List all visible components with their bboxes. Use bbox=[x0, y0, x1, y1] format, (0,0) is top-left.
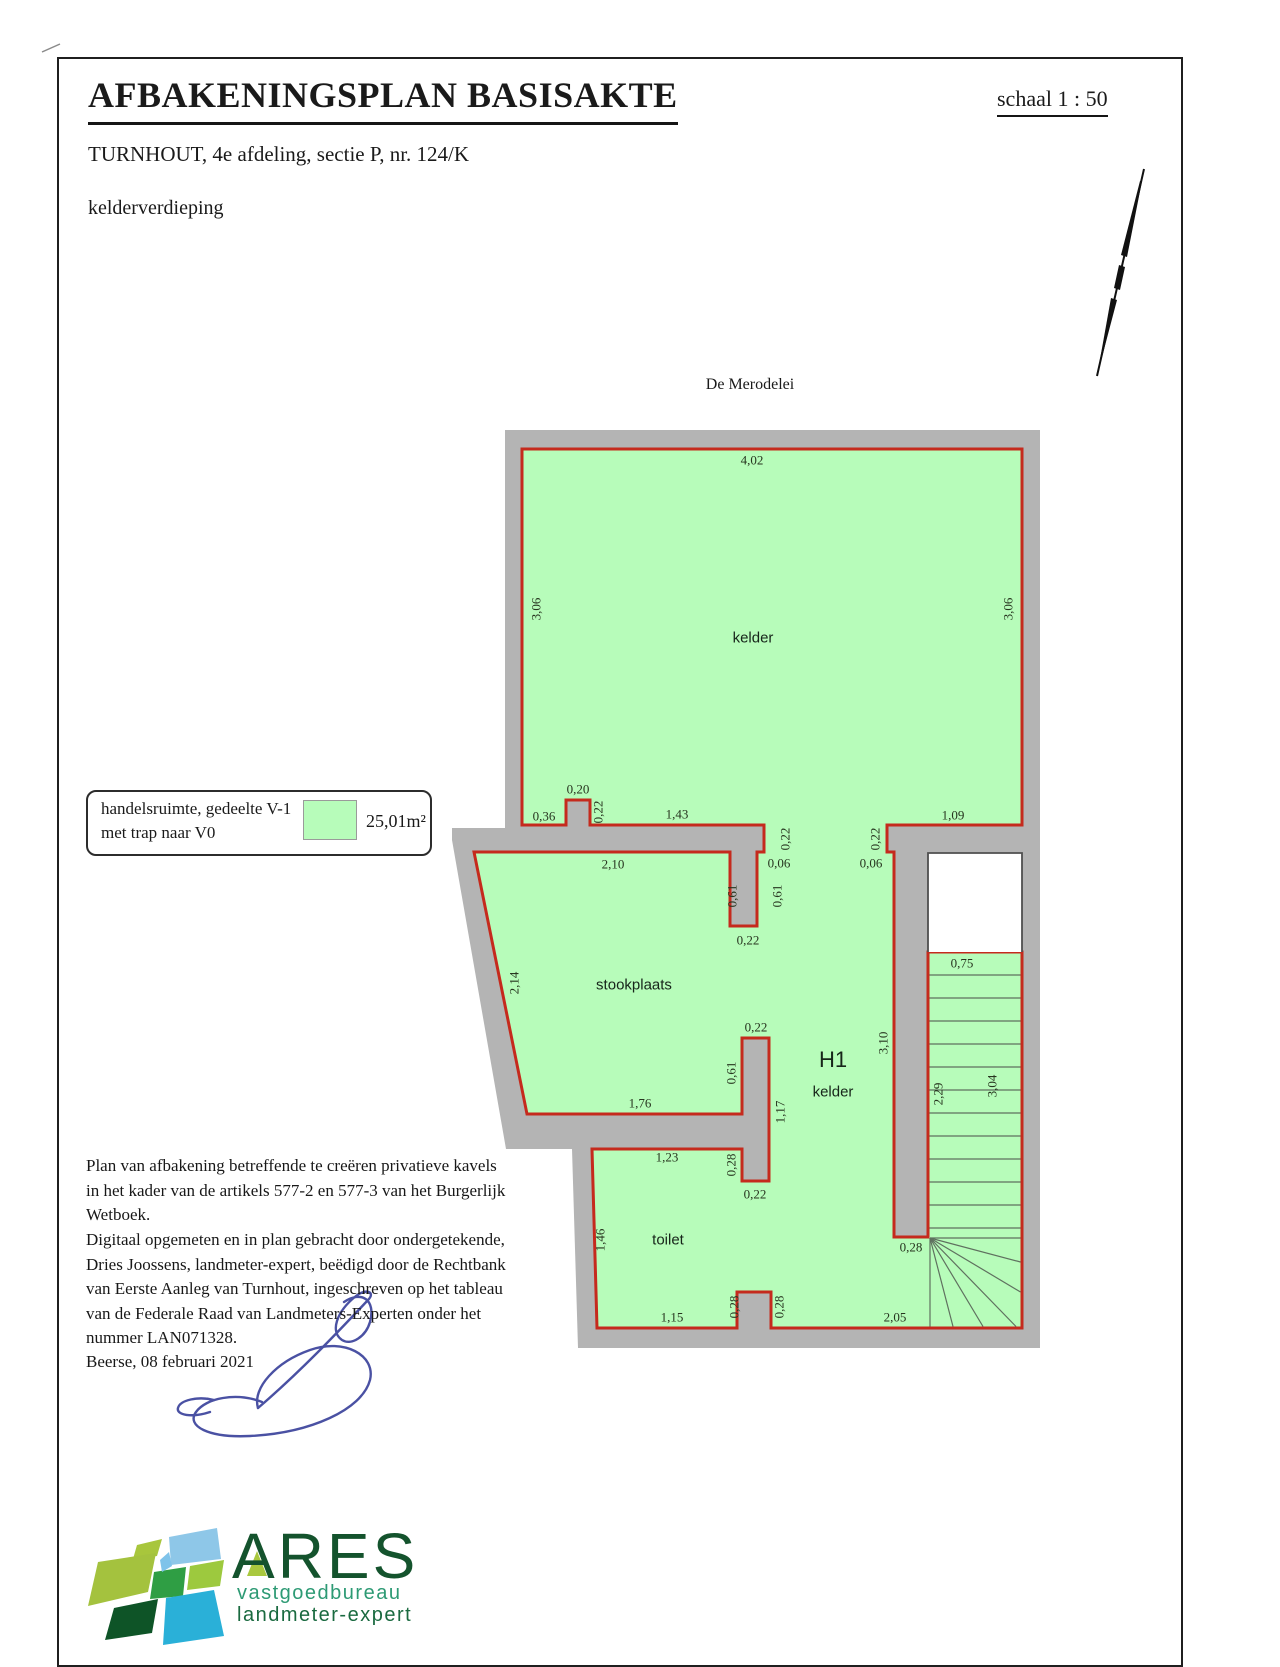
scanned-document-page: { "colors": { "parcel_green": "#b7fcba",… bbox=[0, 0, 1280, 1647]
dimension-label: 1,46 bbox=[594, 1229, 607, 1252]
dimension-label: 0,22 bbox=[737, 934, 760, 947]
dimension-label: 0,36 bbox=[533, 810, 556, 823]
dimension-label: 3,06 bbox=[1002, 598, 1015, 621]
dimension-label: 1,76 bbox=[629, 1097, 652, 1110]
room-label: kelder bbox=[733, 631, 774, 646]
dimension-label: 1,17 bbox=[774, 1101, 787, 1124]
dimension-label: 0,22 bbox=[869, 828, 882, 851]
dimension-label: 1,15 bbox=[661, 1311, 684, 1324]
dimension-label: 2,05 bbox=[884, 1311, 907, 1324]
room-label: H1 bbox=[819, 1049, 847, 1071]
dimension-label: 0,20 bbox=[567, 783, 590, 796]
dimension-label: 3,04 bbox=[986, 1075, 999, 1098]
dimension-label: 0,22 bbox=[592, 801, 605, 824]
note-paragraph-2: Digitaal opgemeten en in plan gebracht d… bbox=[86, 1228, 546, 1351]
dimension-label: 3,10 bbox=[877, 1032, 890, 1055]
street-name: De Merodelei bbox=[706, 376, 794, 394]
dimension-label: 0,06 bbox=[860, 857, 883, 870]
legend-label: handelsruimte, gedeelte V-1 met trap naa… bbox=[101, 797, 291, 845]
dimension-label: 0,28 bbox=[773, 1296, 786, 1319]
logo-subtitle-1: vastgoedbureau bbox=[237, 1583, 401, 1603]
dimension-label: 2,29 bbox=[932, 1083, 945, 1106]
dimension-label: 1,23 bbox=[656, 1151, 679, 1164]
dimension-label: 3,06 bbox=[530, 598, 543, 621]
dimension-label: 0,28 bbox=[900, 1241, 923, 1254]
note-paragraph-1: Plan van afbakening betreffende te creër… bbox=[86, 1154, 546, 1228]
dimension-label: 0,22 bbox=[744, 1188, 767, 1201]
dimension-label: 2,10 bbox=[602, 858, 625, 871]
dimension-label: 1,09 bbox=[942, 809, 965, 822]
north-needle-icon bbox=[1097, 169, 1144, 376]
dimension-label: 0,22 bbox=[745, 1021, 768, 1034]
dimension-label: 0,61 bbox=[726, 885, 739, 908]
place-and-date: Beerse, 08 februari 2021 bbox=[86, 1350, 546, 1375]
stair-void bbox=[928, 853, 1022, 952]
dimension-label: 0,28 bbox=[728, 1296, 741, 1319]
scan-artifact bbox=[42, 44, 60, 52]
dimension-label: 0,75 bbox=[951, 957, 974, 970]
dimension-label: 0,06 bbox=[768, 857, 791, 870]
dimension-label: 0,61 bbox=[725, 1062, 738, 1085]
logo-subtitle-2: landmeter-expert bbox=[237, 1605, 412, 1625]
legend-area-value: 25,01m² bbox=[366, 811, 426, 832]
room-label: toilet bbox=[652, 1233, 684, 1248]
dimension-label: 0,28 bbox=[725, 1154, 738, 1177]
dimension-label: 1,43 bbox=[666, 808, 689, 821]
room-label: kelder bbox=[813, 1085, 854, 1100]
legend-color-swatch bbox=[303, 800, 357, 840]
dimension-label: 4,02 bbox=[741, 454, 764, 467]
dimension-label: 0,61 bbox=[771, 885, 784, 908]
logo-wordmark: ARES bbox=[232, 1524, 418, 1588]
dimension-label: 0,22 bbox=[779, 828, 792, 851]
room-label: stookplaats bbox=[596, 978, 672, 993]
dimension-label: 2,14 bbox=[508, 972, 521, 995]
